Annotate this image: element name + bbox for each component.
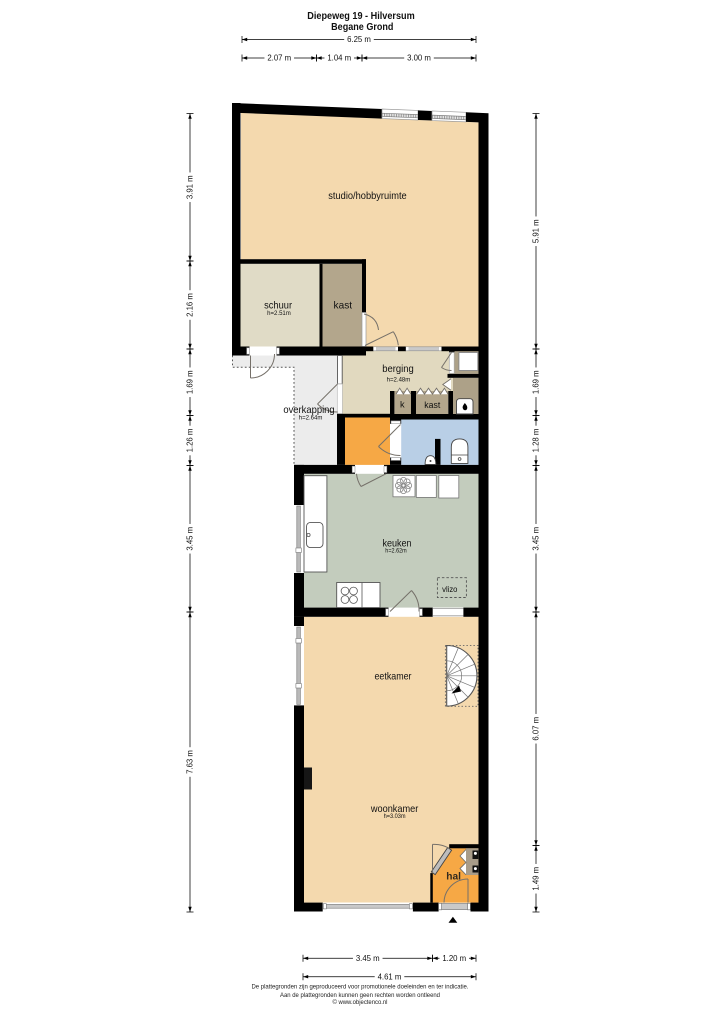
svg-text:1.28 m: 1.28 m [532, 429, 541, 453]
svg-text:2.07 m: 2.07 m [267, 54, 291, 63]
svg-text:© www.objectenco.nl: © www.objectenco.nl [333, 998, 388, 1006]
svg-text:1.69 m: 1.69 m [186, 370, 195, 394]
svg-text:3.45 m: 3.45 m [532, 527, 541, 551]
svg-text:3.91 m: 3.91 m [186, 175, 195, 199]
svg-text:1.20 m: 1.20 m [442, 954, 466, 963]
svg-text:5.91 m: 5.91 m [532, 219, 541, 243]
svg-text:6.07 m: 6.07 m [532, 717, 541, 741]
svg-text:De plattegronden zijn geproduc: De plattegronden zijn geproduceerd voor … [252, 984, 469, 991]
svg-text:kast: kast [424, 400, 440, 411]
svg-text:h=3.03m: h=3.03m [384, 813, 406, 820]
svg-text:vlizo: vlizo [442, 585, 458, 594]
svg-text:1.04 m: 1.04 m [327, 54, 351, 63]
svg-text:h=2.51m: h=2.51m [267, 310, 291, 317]
svg-text:kast: kast [334, 300, 353, 312]
svg-text:3.00 m: 3.00 m [407, 54, 431, 63]
svg-text:4.61 m: 4.61 m [378, 972, 402, 981]
svg-text:h=2.62m: h=2.62m [385, 548, 406, 555]
svg-text:Diepeweg 19 - Hilversum: Diepeweg 19 - Hilversum [307, 11, 415, 22]
svg-text:h=2.48m: h=2.48m [387, 377, 411, 384]
svg-text:1.26 m: 1.26 m [186, 429, 195, 453]
svg-text:3.45 m: 3.45 m [356, 954, 380, 963]
svg-text:eetkamer: eetkamer [375, 671, 412, 683]
svg-text:3.45 m: 3.45 m [186, 527, 195, 551]
svg-text:k: k [400, 400, 405, 411]
svg-text:2.16 m: 2.16 m [186, 293, 195, 317]
svg-text:Begane Grond: Begane Grond [331, 22, 393, 33]
svg-text:berging: berging [382, 363, 414, 375]
svg-text:1.49 m: 1.49 m [532, 867, 541, 891]
svg-text:hal: hal [446, 871, 461, 883]
svg-text:1.69 m: 1.69 m [532, 370, 541, 394]
svg-text:7.63 m: 7.63 m [186, 750, 195, 774]
svg-text:Aan de plattegronden kunnen ge: Aan de plattegronden kunnen geen rechten… [280, 992, 440, 999]
svg-text:h=2.64m: h=2.64m [299, 415, 323, 422]
svg-text:6.25 m: 6.25 m [347, 35, 371, 44]
svg-text:studio/hobbyruimte: studio/hobbyruimte [328, 190, 407, 202]
